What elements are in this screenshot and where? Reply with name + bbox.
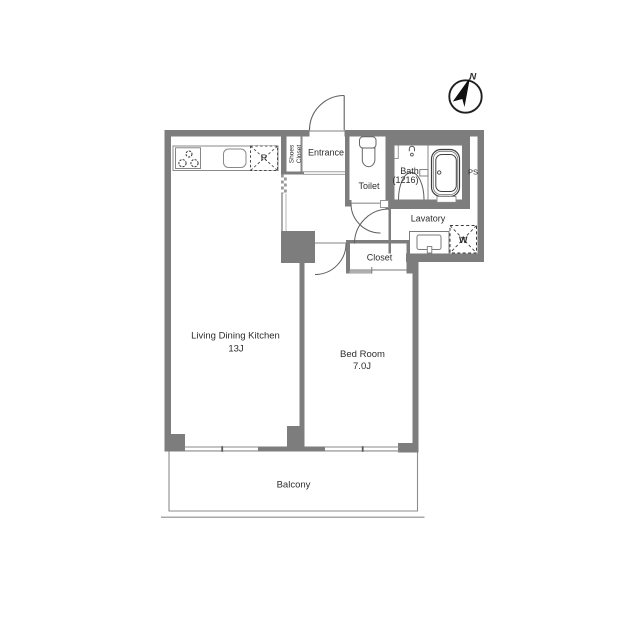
svg-text:Toilet: Toilet <box>358 181 380 191</box>
svg-text:W: W <box>459 235 468 245</box>
svg-text:(1216): (1216) <box>392 175 418 185</box>
svg-text:Closet: Closet <box>296 145 303 164</box>
svg-text:Shoes: Shoes <box>289 144 296 163</box>
svg-text:PS: PS <box>468 168 478 177</box>
svg-text:7.0J: 7.0J <box>353 361 371 372</box>
svg-text:Bed Room: Bed Room <box>340 349 385 360</box>
svg-text:Closet: Closet <box>367 253 393 263</box>
svg-text:R: R <box>261 153 268 164</box>
svg-text:Living Dining Kitchen: Living Dining Kitchen <box>191 331 280 342</box>
svg-text:13J: 13J <box>228 344 244 355</box>
svg-text:Balcony: Balcony <box>277 480 311 491</box>
svg-text:Entrance: Entrance <box>308 148 344 158</box>
svg-text:N: N <box>469 72 477 83</box>
svg-text:Lavatory: Lavatory <box>411 214 446 224</box>
